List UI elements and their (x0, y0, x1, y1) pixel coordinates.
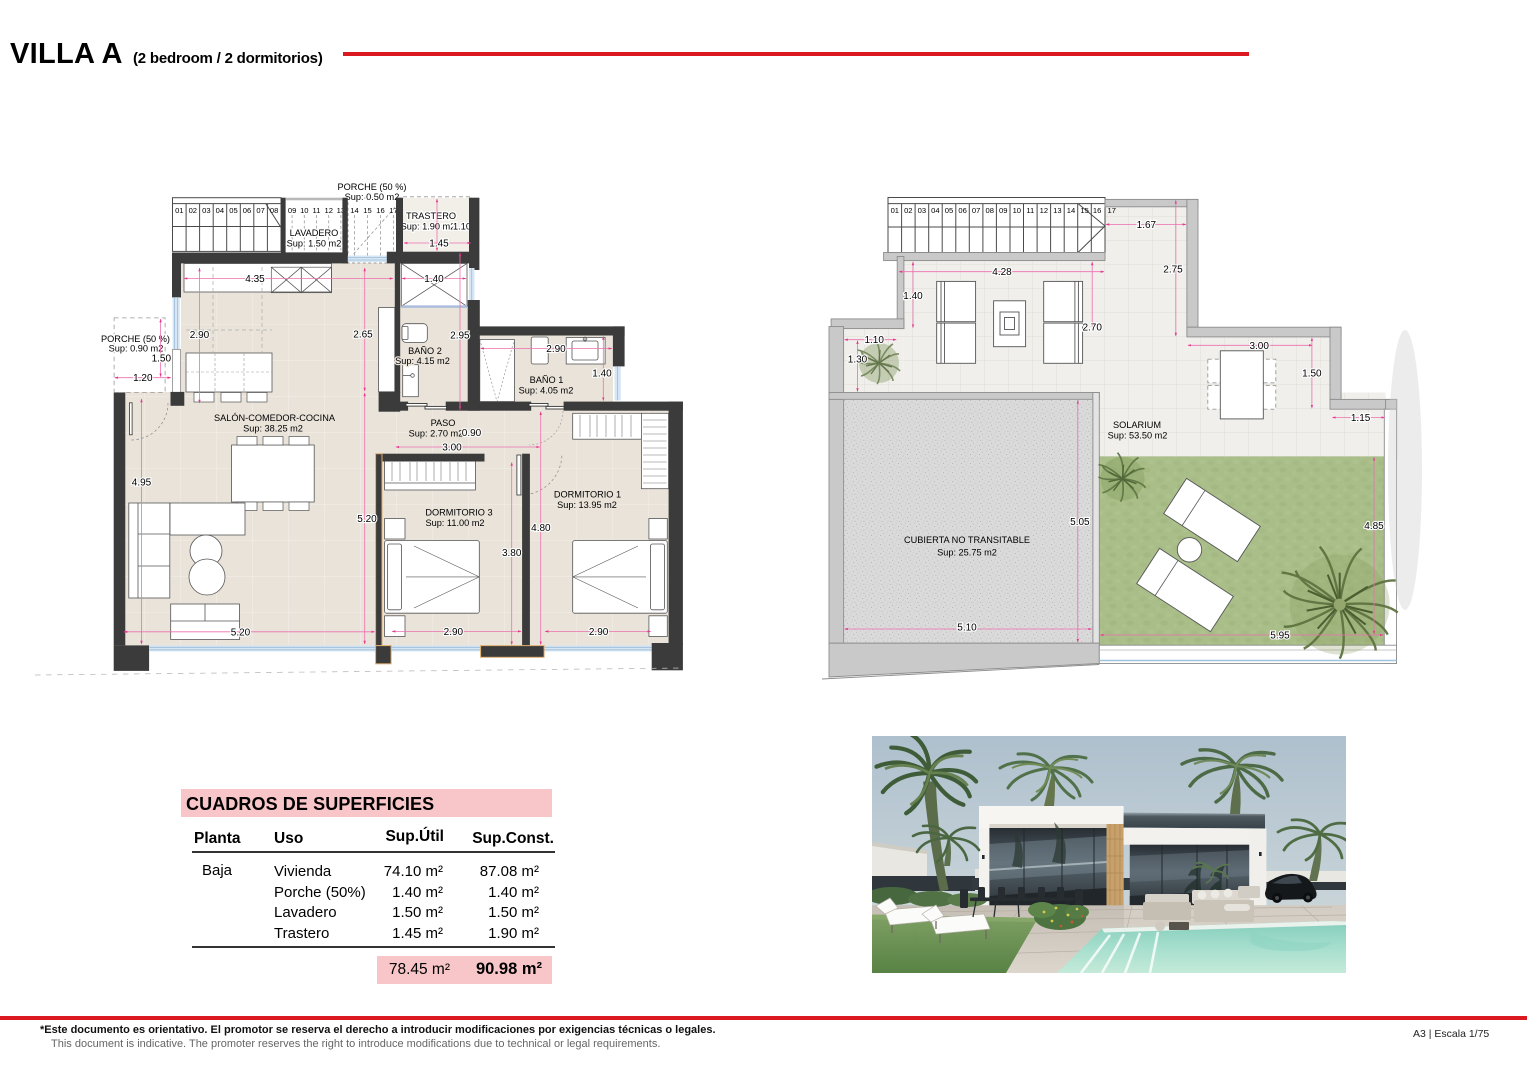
svg-text:Sup: 11.00 m2: Sup: 11.00 m2 (425, 518, 484, 528)
svg-text:1.40: 1.40 (424, 274, 444, 285)
svg-text:DORMITORIO 1: DORMITORIO 1 (554, 490, 621, 500)
svg-text:12: 12 (1040, 206, 1048, 215)
svg-text:3.80: 3.80 (502, 548, 522, 559)
svg-text:11: 11 (313, 206, 321, 215)
svg-text:1.10: 1.10 (864, 335, 884, 346)
svg-text:06: 06 (243, 206, 251, 215)
svg-text:PORCHE (50 %): PORCHE (50 %) (101, 334, 170, 344)
svg-text:09: 09 (999, 206, 1007, 215)
svg-text:13: 13 (1053, 206, 1061, 215)
svg-text:0.90: 0.90 (462, 428, 482, 439)
svg-text:17: 17 (1107, 206, 1115, 215)
svg-text:DORMITORIO 3: DORMITORIO 3 (425, 508, 492, 518)
svg-text:LAVADERO: LAVADERO (290, 228, 339, 238)
svg-text:1.15: 1.15 (1351, 413, 1371, 424)
svg-text:10: 10 (1013, 206, 1021, 215)
svg-text:Sup: 4.15 m2: Sup: 4.15 m2 (395, 356, 450, 366)
svg-text:Sup: 25.75 m2: Sup: 25.75 m2 (937, 547, 997, 557)
svg-text:1.50: 1.50 (1302, 369, 1322, 380)
svg-text:1.40: 1.40 (903, 291, 923, 302)
svg-text:05: 05 (945, 206, 953, 215)
svg-text:02: 02 (904, 206, 912, 215)
svg-text:3.00: 3.00 (1249, 341, 1269, 352)
svg-text:5.95: 5.95 (1270, 631, 1290, 642)
svg-text:Sup: 4.05 m2: Sup: 4.05 m2 (519, 386, 574, 396)
svg-text:2.90: 2.90 (589, 627, 609, 638)
svg-text:14: 14 (1067, 206, 1075, 215)
svg-text:4.35: 4.35 (245, 274, 265, 285)
svg-text:02: 02 (189, 206, 197, 215)
svg-text:1.50: 1.50 (152, 353, 172, 364)
svg-text:16: 16 (1093, 206, 1101, 215)
svg-text:2.90: 2.90 (444, 627, 464, 638)
svg-text:SOLARIUM: SOLARIUM (1113, 420, 1161, 430)
svg-text:1.67: 1.67 (1137, 220, 1157, 231)
svg-text:TRASTERO: TRASTERO (406, 211, 456, 221)
svg-text:2.90: 2.90 (190, 330, 210, 341)
svg-text:14: 14 (350, 206, 358, 215)
svg-text:06: 06 (958, 206, 966, 215)
svg-text:SALÓN-COMEDOR-COCINA: SALÓN-COMEDOR-COCINA (214, 413, 336, 423)
svg-text:07: 07 (972, 206, 980, 215)
svg-text:1.40: 1.40 (592, 369, 612, 380)
svg-text:PASO: PASO (431, 418, 456, 428)
svg-text:Sup: 2.70 m2: Sup: 2.70 m2 (409, 429, 464, 439)
svg-text:2.65: 2.65 (353, 329, 373, 340)
svg-text:4.85: 4.85 (1364, 521, 1384, 532)
svg-text:5.20: 5.20 (231, 627, 251, 638)
svg-text:4.80: 4.80 (531, 523, 551, 534)
svg-text:08: 08 (270, 206, 278, 215)
svg-text:4.95: 4.95 (132, 477, 152, 488)
svg-text:08: 08 (985, 206, 993, 215)
svg-text:10: 10 (300, 206, 308, 215)
svg-text:4.28: 4.28 (992, 267, 1012, 278)
svg-text:2.75: 2.75 (1163, 264, 1183, 275)
svg-text:1.45: 1.45 (429, 239, 449, 250)
svg-text:5.10: 5.10 (957, 622, 977, 633)
svg-text:Sup: 13.95 m2: Sup: 13.95 m2 (557, 500, 617, 510)
svg-text:05: 05 (229, 206, 237, 215)
svg-text:1.30: 1.30 (848, 355, 868, 366)
svg-text:03: 03 (918, 206, 926, 215)
svg-text:1.10: 1.10 (453, 222, 471, 232)
svg-text:5.05: 5.05 (1070, 517, 1090, 528)
svg-text:CUBIERTA NO TRANSITABLE: CUBIERTA NO TRANSITABLE (904, 535, 1030, 545)
svg-text:Sup: 0.90 m2: Sup: 0.90 m2 (109, 344, 164, 354)
svg-text:11: 11 (1026, 206, 1034, 215)
svg-text:1.20: 1.20 (133, 373, 153, 384)
svg-text:01: 01 (891, 206, 899, 215)
svg-text:2.70: 2.70 (1082, 323, 1102, 334)
svg-text:Sup: 38.25 m2: Sup: 38.25 m2 (243, 424, 303, 434)
svg-text:PORCHE (50 %): PORCHE (50 %) (338, 182, 407, 192)
svg-text:Sup: 1.50 m2: Sup: 1.50 m2 (287, 239, 342, 249)
svg-text:04: 04 (931, 206, 939, 215)
svg-text:09: 09 (288, 206, 296, 215)
svg-text:BAÑO 2: BAÑO 2 (408, 346, 442, 356)
svg-text:12: 12 (324, 206, 332, 215)
svg-text:Sup: 53.50 m2: Sup: 53.50 m2 (1108, 431, 1168, 441)
svg-text:07: 07 (256, 206, 264, 215)
svg-text:2.90: 2.90 (546, 344, 566, 355)
svg-text:15: 15 (1080, 206, 1088, 215)
svg-text:3.00: 3.00 (442, 443, 462, 454)
svg-text:03: 03 (202, 206, 210, 215)
svg-text:04: 04 (216, 206, 224, 215)
svg-text:16: 16 (376, 206, 384, 215)
svg-text:5.20: 5.20 (357, 514, 377, 525)
svg-text:BAÑO 1: BAÑO 1 (530, 375, 564, 385)
svg-text:Sup: 1.90 m2: Sup: 1.90 m2 (401, 222, 456, 232)
svg-text:Sup: 0.50 m2: Sup: 0.50 m2 (345, 192, 400, 202)
svg-text:2.95: 2.95 (450, 331, 470, 342)
svg-text:15: 15 (363, 206, 371, 215)
svg-text:01: 01 (175, 206, 183, 215)
